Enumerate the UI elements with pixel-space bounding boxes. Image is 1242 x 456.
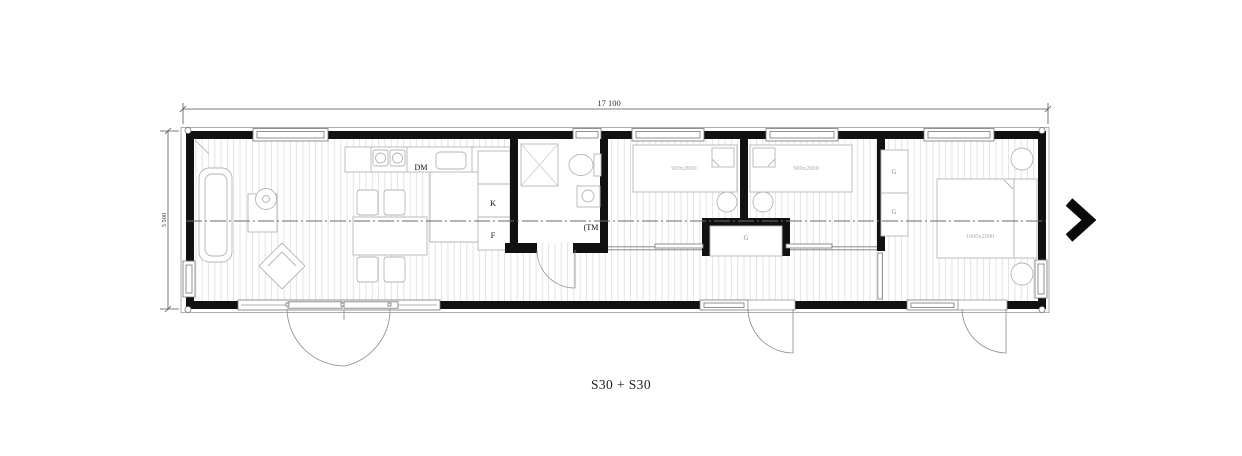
bedside-table (1011, 263, 1033, 285)
chair (357, 190, 378, 215)
next-button[interactable] (1061, 196, 1099, 244)
label-dishwasher: DM (415, 163, 428, 172)
bedside-table (717, 192, 737, 212)
stove (436, 152, 466, 169)
label-washing-machine: (TM (584, 223, 599, 232)
door-swings (287, 309, 1007, 366)
label-wardrobe-master-top: G (891, 168, 896, 176)
label-bed-single-left: 900x2000 (671, 165, 696, 172)
sliding-door-bedroom-right (786, 244, 832, 248)
chair (384, 190, 405, 215)
floor-hatch (194, 139, 1038, 301)
dimension-width-label: 3 500 (161, 213, 168, 228)
label-wardrobe-master-bottom: G (891, 208, 896, 216)
label-bed-single-right: 900x2000 (793, 165, 818, 172)
label-bed-double: 1600x2000 (966, 233, 994, 240)
bathroom-wall-left (510, 139, 518, 253)
dimension-length-label: 17 100 (597, 98, 620, 108)
bedside-table (1011, 148, 1033, 170)
toilet (569, 155, 593, 176)
label-washing-machine-room: F (491, 231, 496, 240)
label-wardrobe-hall: G (743, 234, 748, 242)
sliding-door-master (878, 253, 883, 299)
floorplan-page: 17 100 3 500 DM K F (TM G G G 900x2000 9… (0, 0, 1242, 456)
chair (384, 257, 405, 282)
plan-caption: S30 + S30 (0, 377, 1242, 393)
sliding-door-bedroom-left (655, 244, 703, 248)
bed-double (937, 179, 1014, 258)
bedside-table (753, 192, 773, 212)
chair (357, 257, 378, 282)
chevron-right-icon (1064, 198, 1096, 242)
dining-table (353, 217, 427, 255)
bedroom-divider-wall (740, 139, 748, 225)
label-fridge: K (490, 199, 496, 208)
